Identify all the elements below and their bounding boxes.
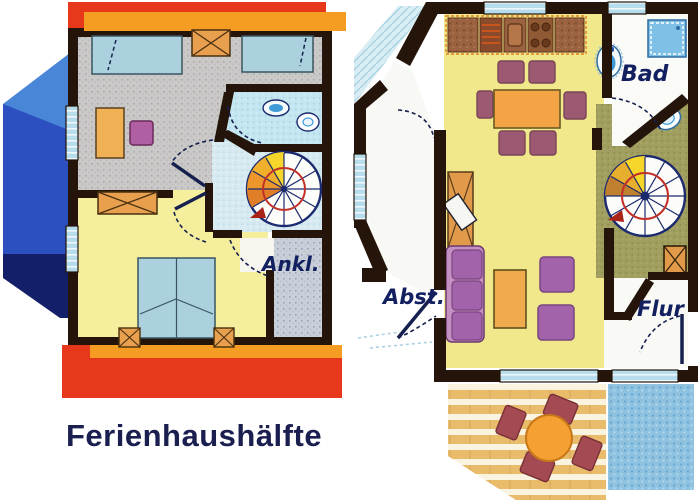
room-label-flur: Flur bbox=[637, 297, 685, 321]
desk bbox=[96, 108, 124, 158]
kitchen-counter bbox=[446, 16, 586, 54]
roof-bar-red-stub bbox=[62, 345, 90, 359]
single-bed bbox=[92, 36, 182, 74]
window bbox=[354, 154, 366, 220]
terrain-dashes bbox=[358, 332, 432, 348]
window bbox=[484, 2, 546, 14]
shower bbox=[648, 20, 686, 57]
spiral-staircase-ground bbox=[605, 156, 685, 236]
sofa bbox=[446, 246, 484, 342]
roof-bar-orange-top bbox=[84, 12, 346, 31]
garden-blue-area bbox=[608, 384, 694, 490]
chair bbox=[130, 121, 153, 145]
armchair bbox=[538, 305, 574, 340]
counter-unit bbox=[555, 18, 584, 52]
terrace-table bbox=[526, 415, 572, 461]
gable-shadow bbox=[3, 46, 79, 318]
wardrobe bbox=[98, 192, 157, 214]
patio-window bbox=[500, 370, 598, 382]
room-label-abst: Abst. bbox=[381, 285, 445, 309]
dining-table bbox=[494, 90, 560, 128]
nightstand bbox=[119, 328, 140, 347]
door-arc bbox=[398, 316, 436, 338]
room-label-bad: Bad bbox=[621, 62, 669, 87]
stove-unit bbox=[528, 18, 553, 52]
bathroom-sink bbox=[263, 100, 289, 116]
oven-unit bbox=[480, 18, 502, 52]
wardrobe bbox=[192, 30, 230, 56]
coffee-table bbox=[494, 270, 526, 328]
floor-plan-canvas: Ankl. bbox=[0, 0, 700, 500]
window bbox=[66, 106, 78, 160]
landing-cabinet bbox=[664, 246, 686, 274]
armchair bbox=[540, 257, 574, 292]
upper-floor-plan: Ankl. bbox=[3, 2, 346, 398]
nightstand bbox=[214, 328, 234, 347]
tv-cabinet bbox=[443, 172, 476, 248]
caption: Ferienhaushälfte bbox=[66, 418, 322, 453]
patio-window bbox=[612, 370, 678, 382]
roof-bar-red-bottom bbox=[62, 358, 342, 398]
sink-basin bbox=[508, 24, 522, 46]
terrace bbox=[448, 380, 694, 500]
spiral-staircase-upper bbox=[247, 152, 321, 226]
counter-unit bbox=[448, 18, 478, 52]
double-bed bbox=[138, 258, 215, 338]
window bbox=[608, 2, 646, 14]
ground-floor-plan: Bad Abst. Flur bbox=[354, 2, 698, 500]
toilet bbox=[297, 113, 319, 131]
floor-plan-image: Ankl. bbox=[0, 0, 700, 500]
room-label-ankleide: Ankl. bbox=[260, 252, 319, 276]
window bbox=[66, 226, 78, 272]
